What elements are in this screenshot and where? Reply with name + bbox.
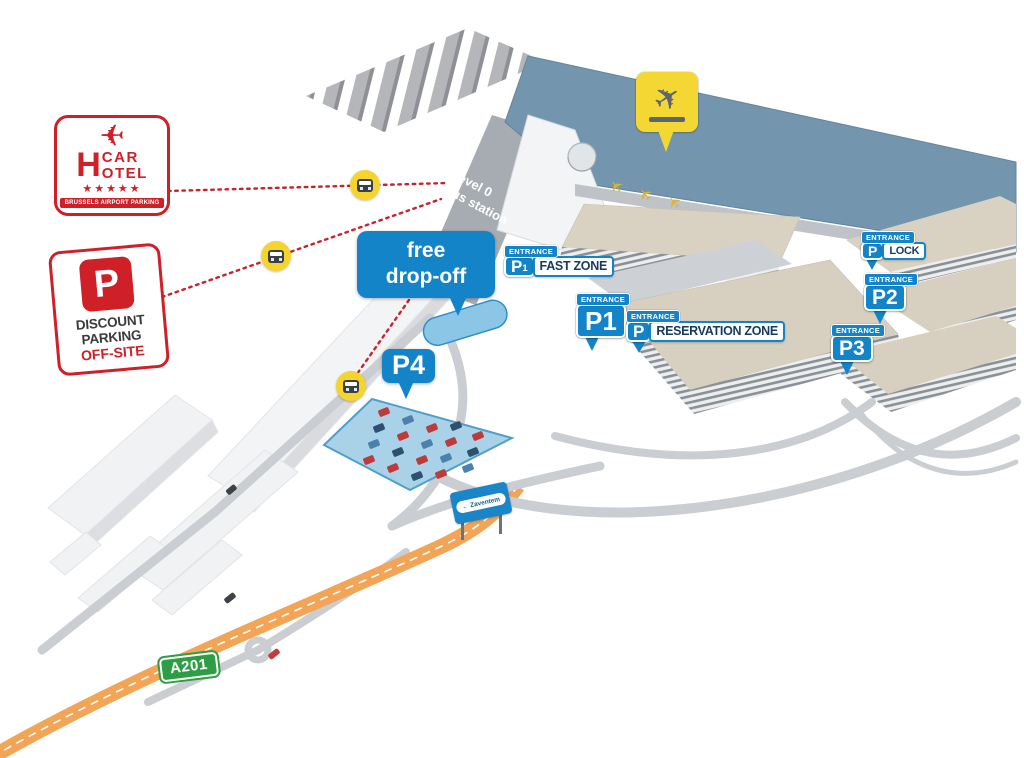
p4-label: P4 [382, 349, 435, 383]
car-hotel-line2: OTEL [102, 166, 148, 182]
bus-windshield [270, 252, 282, 257]
bus-light-right [279, 258, 282, 261]
label-pointer [585, 337, 599, 351]
label-pointer [398, 381, 414, 399]
bus-light-left [360, 187, 363, 190]
free-dropoff-label: free drop-off [357, 231, 495, 298]
car-hotel-big-h: H [76, 151, 101, 180]
label-pointer [840, 361, 854, 375]
car-hotel-tagline: BRUSSELS AIRPORT PARKING [60, 198, 164, 208]
reservation-zone-text: RESERVATION ZONE [649, 321, 785, 342]
entrance-p3-label: ENTRANCE P3 [831, 320, 885, 375]
airplane-icon: ✈ [647, 78, 687, 119]
entrance-p2-label: ENTRANCE P2 [864, 269, 918, 324]
bus-glyph [357, 179, 373, 192]
bus-stop-icon-3 [336, 371, 366, 401]
label-pointer [632, 341, 646, 353]
bus-stop-icon-2 [261, 241, 291, 271]
entrance-p1-label: ENTRANCE P1 [576, 289, 630, 351]
five-stars: ★★★★★ [60, 183, 164, 196]
car-hotel-logo: ✈ H CAR OTEL ★★★★★ BRUSSELS AIRPORT PARK… [54, 115, 170, 216]
dropoff-line2: drop-off [357, 264, 495, 290]
p-badge: P [626, 321, 651, 342]
entrance-p-lock-label: ENTRANCE P LOCK [861, 227, 926, 270]
bus-windshield [345, 382, 357, 387]
p4-text: P4 [392, 350, 425, 380]
bus-glyph [268, 250, 284, 263]
dropoff-line1: free [357, 238, 495, 264]
dropoff-pointer [449, 296, 467, 316]
p2-badge: P2 [864, 284, 906, 311]
p-badge: P [861, 242, 884, 260]
departures-pointer [658, 130, 674, 152]
entrance-p1-fast-zone-label: ENTRANCE P1 FAST ZONE [504, 241, 614, 277]
entrance-tag: ENTRANCE [504, 245, 558, 258]
entrance-tag: ENTRANCE [861, 231, 915, 244]
entrance-tag: ENTRANCE [576, 293, 630, 306]
fast-zone-text: FAST ZONE [533, 256, 614, 277]
entrance-reservation-zone-label: ENTRANCE P RESERVATION ZONE [626, 306, 785, 353]
bus-light-left [271, 258, 274, 261]
p3-badge: P3 [831, 335, 873, 362]
map-base-art: ✈ ✈ ✈ [0, 0, 1024, 758]
bus-light-right [368, 187, 371, 190]
bus-stop-icon-1 [350, 170, 380, 200]
lock-text: LOCK [882, 242, 926, 260]
entrance-tag: ENTRANCE [864, 273, 918, 286]
zaventem-text: ← Zaventem [455, 492, 507, 514]
p1-badge: P1 [576, 304, 626, 338]
airport-parking-map: ✈ ✈ ✈ ✈ H CAR OTEL ★★★★★ BRUSSELS AIRPOR… [0, 0, 1024, 758]
car-hotel-plane-icon: ✈ [60, 122, 164, 152]
bus-glyph [343, 380, 359, 393]
entrance-tag: ENTRANCE [626, 310, 680, 323]
entrance-tag: ENTRANCE [831, 324, 885, 337]
parking-p-icon: P [79, 256, 135, 312]
car-hotel-name: H CAR OTEL [60, 150, 164, 182]
discount-parking-sign: P DISCOUNT PARKING OFF-SITE [48, 242, 170, 376]
p4-parking-lot [324, 399, 512, 490]
departures-icon: ✈ [636, 72, 698, 132]
bus-windshield [359, 181, 371, 186]
bus-light-right [354, 388, 357, 391]
bus-light-left [346, 388, 349, 391]
p1-badge: P1 [504, 256, 535, 277]
